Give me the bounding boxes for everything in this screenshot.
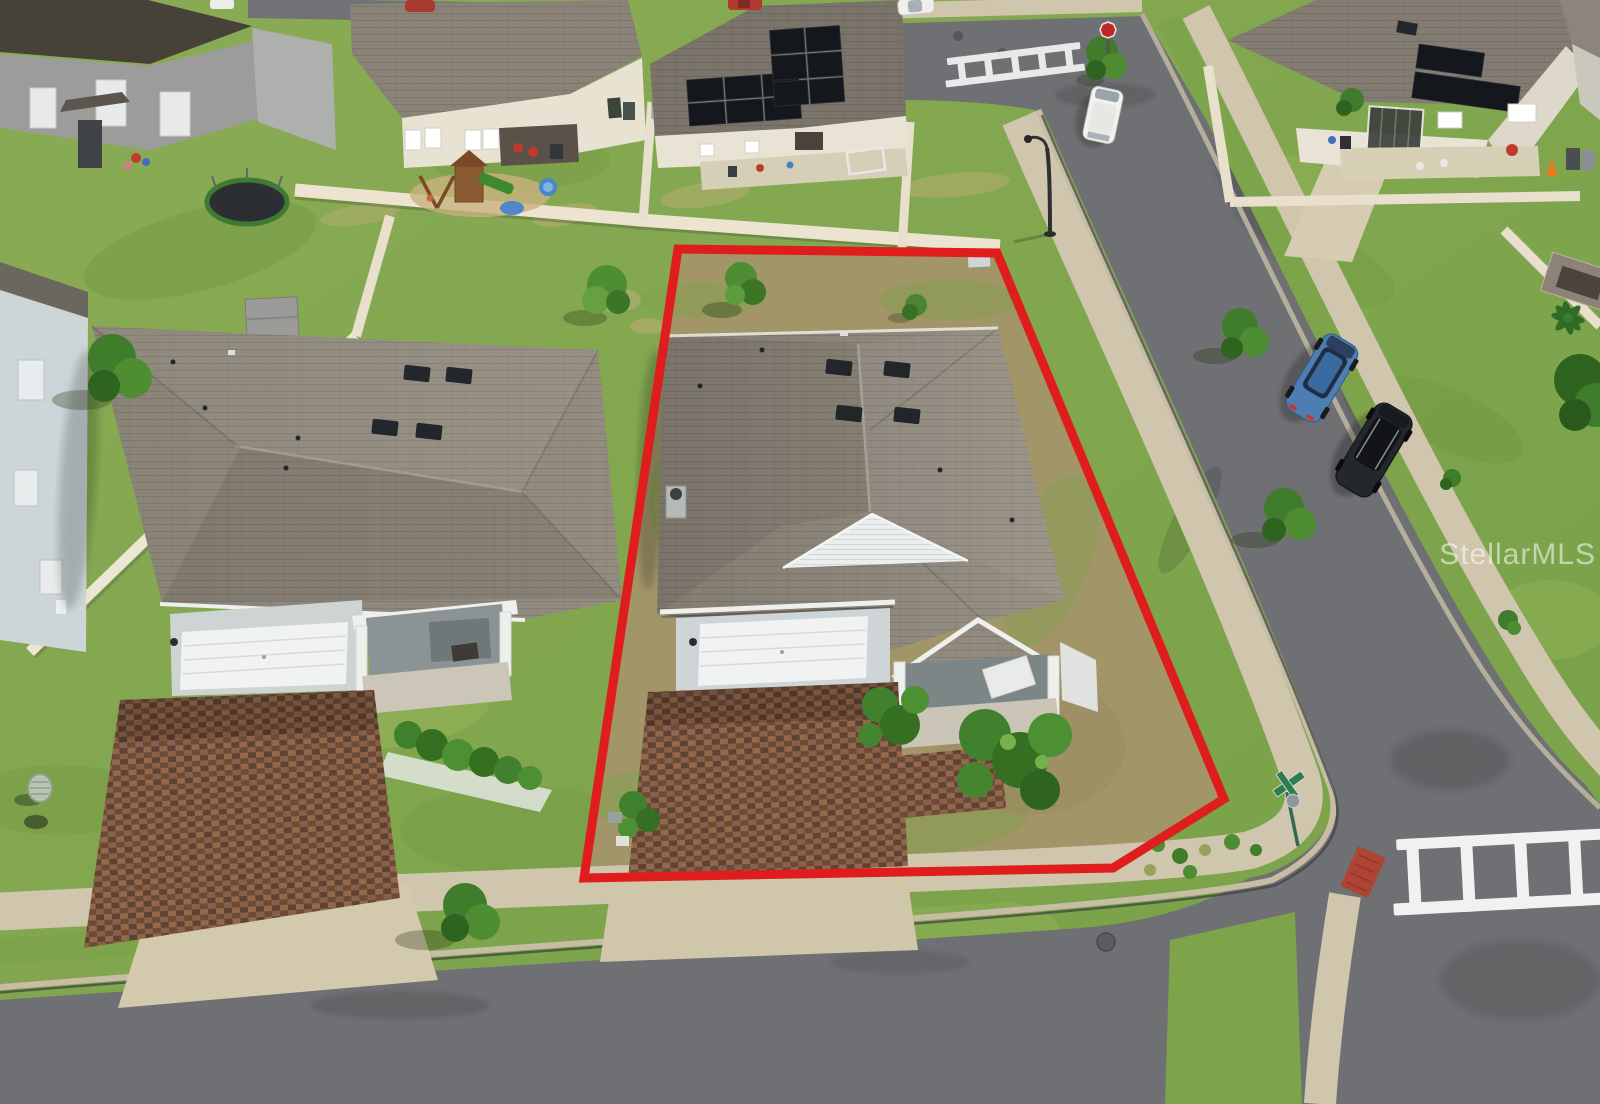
red-car [405, 0, 435, 12]
sliding-door [795, 132, 823, 150]
entry-door [78, 120, 102, 168]
photo-canvas: StellarMLS [0, 0, 1600, 1104]
trash-bin [1582, 150, 1595, 170]
window [465, 130, 481, 150]
window [405, 130, 421, 150]
tree [1554, 354, 1600, 431]
corner-grass-wedge [1165, 912, 1302, 1104]
window [14, 470, 38, 506]
ac-unit [666, 486, 686, 518]
play-tower [455, 166, 483, 202]
watermark: StellarMLS [1439, 538, 1596, 571]
green-utility-pedestal [28, 774, 52, 802]
patio-chair-red [513, 143, 523, 153]
white-car [210, 0, 234, 9]
red-car [728, 0, 762, 10]
window [483, 129, 499, 149]
coach-light [689, 638, 697, 646]
storage-shed [245, 297, 299, 340]
trash-bin [1566, 148, 1580, 170]
white-car [897, 0, 934, 16]
utility-box [608, 812, 622, 823]
utility-box [616, 836, 629, 846]
window [1438, 112, 1462, 128]
window [30, 88, 56, 128]
stop-sign-back [1286, 794, 1300, 808]
lamp-head [1024, 135, 1032, 143]
window [18, 360, 44, 400]
window [425, 128, 441, 148]
covered-patio [499, 124, 579, 166]
window [1508, 104, 1536, 122]
screened-lanai [1367, 106, 1424, 154]
patio-chair-red [528, 147, 538, 157]
window [160, 92, 190, 136]
aerial-photo: StellarMLS [0, 0, 1600, 1104]
